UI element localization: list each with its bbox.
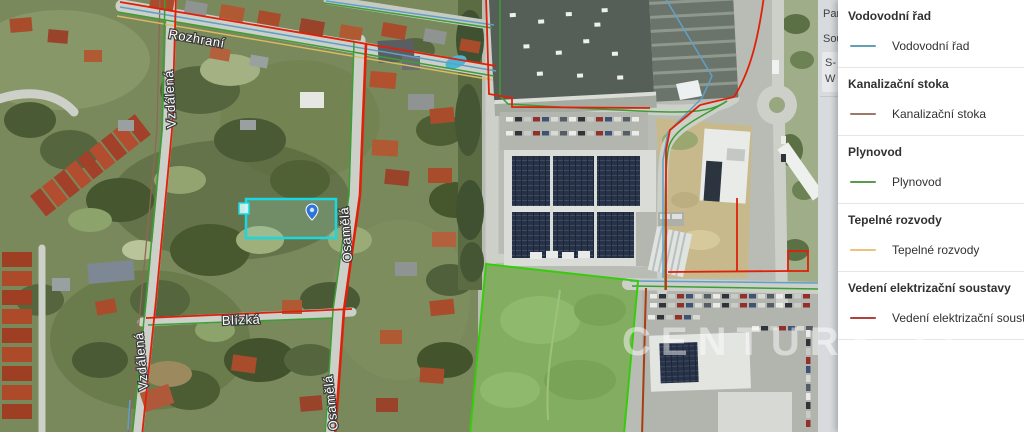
legend-section-heat: Tepelné rozvody Tepelné rozvody [838,204,1024,272]
legend-section-title: Vedení elektrizační soustavy [848,281,1014,296]
form-label-fragment: Parc [823,8,838,20]
map-canvas[interactable]: Rozhraní Vzdálená Vzdálená Osamělá Osamě… [0,0,818,432]
electric-line-swatch [850,317,876,319]
legend-section-title: Tepelné rozvody [848,213,1014,228]
legend-row: Tepelné rozvody [850,243,1014,271]
form-value-fragment: S- [825,57,836,69]
legend-panel: Vodovodní řad Vodovodní řad Kanalizační … [838,0,1024,432]
parcel-highlight[interactable] [239,199,336,238]
form-label-fragment: Sou [823,33,838,45]
form-value-fragment: W [825,73,835,85]
legend-section-sewer: Kanalizační stoka Kanalizační stoka [838,68,1024,136]
legend-row: Plynovod [850,175,1014,203]
legend-section-water: Vodovodní řad Vodovodní řad [838,0,1024,68]
heat-line-swatch [850,249,876,251]
legend-label: Kanalizační stoka [892,107,986,121]
water-line-swatch [850,45,876,47]
legend-label: Vodovodní řad [892,39,969,53]
legend-row: Vedení elektrizační soustavy [850,311,1014,339]
legend-label: Tepelné rozvody [892,243,979,257]
legend-row: Vodovodní řad [850,39,1014,67]
gas-line-swatch [850,181,876,183]
legend-label: Plynovod [892,175,941,189]
legend-section-title: Kanalizační stoka [848,77,1014,92]
street-label-vzdalena-top: Vzdálená [161,69,179,128]
legend-row: Kanalizační stoka [850,107,1014,135]
form-field-box: S- W [822,52,838,92]
legend-section-title: Vodovodní řad [848,9,1014,24]
legend-section-title: Plynovod [848,145,1014,160]
sewer-line-swatch [850,113,876,115]
divider [820,96,838,97]
legend-section-electric: Vedení elektrizační soustavy Vedení elek… [838,272,1024,340]
legend-label: Vedení elektrizační soustavy [892,311,1024,325]
background-form-panel: Parc Sou S- W [818,0,838,432]
legend-section-gas: Plynovod Plynovod [838,136,1024,204]
street-label-blizka: Blízká [222,312,261,328]
